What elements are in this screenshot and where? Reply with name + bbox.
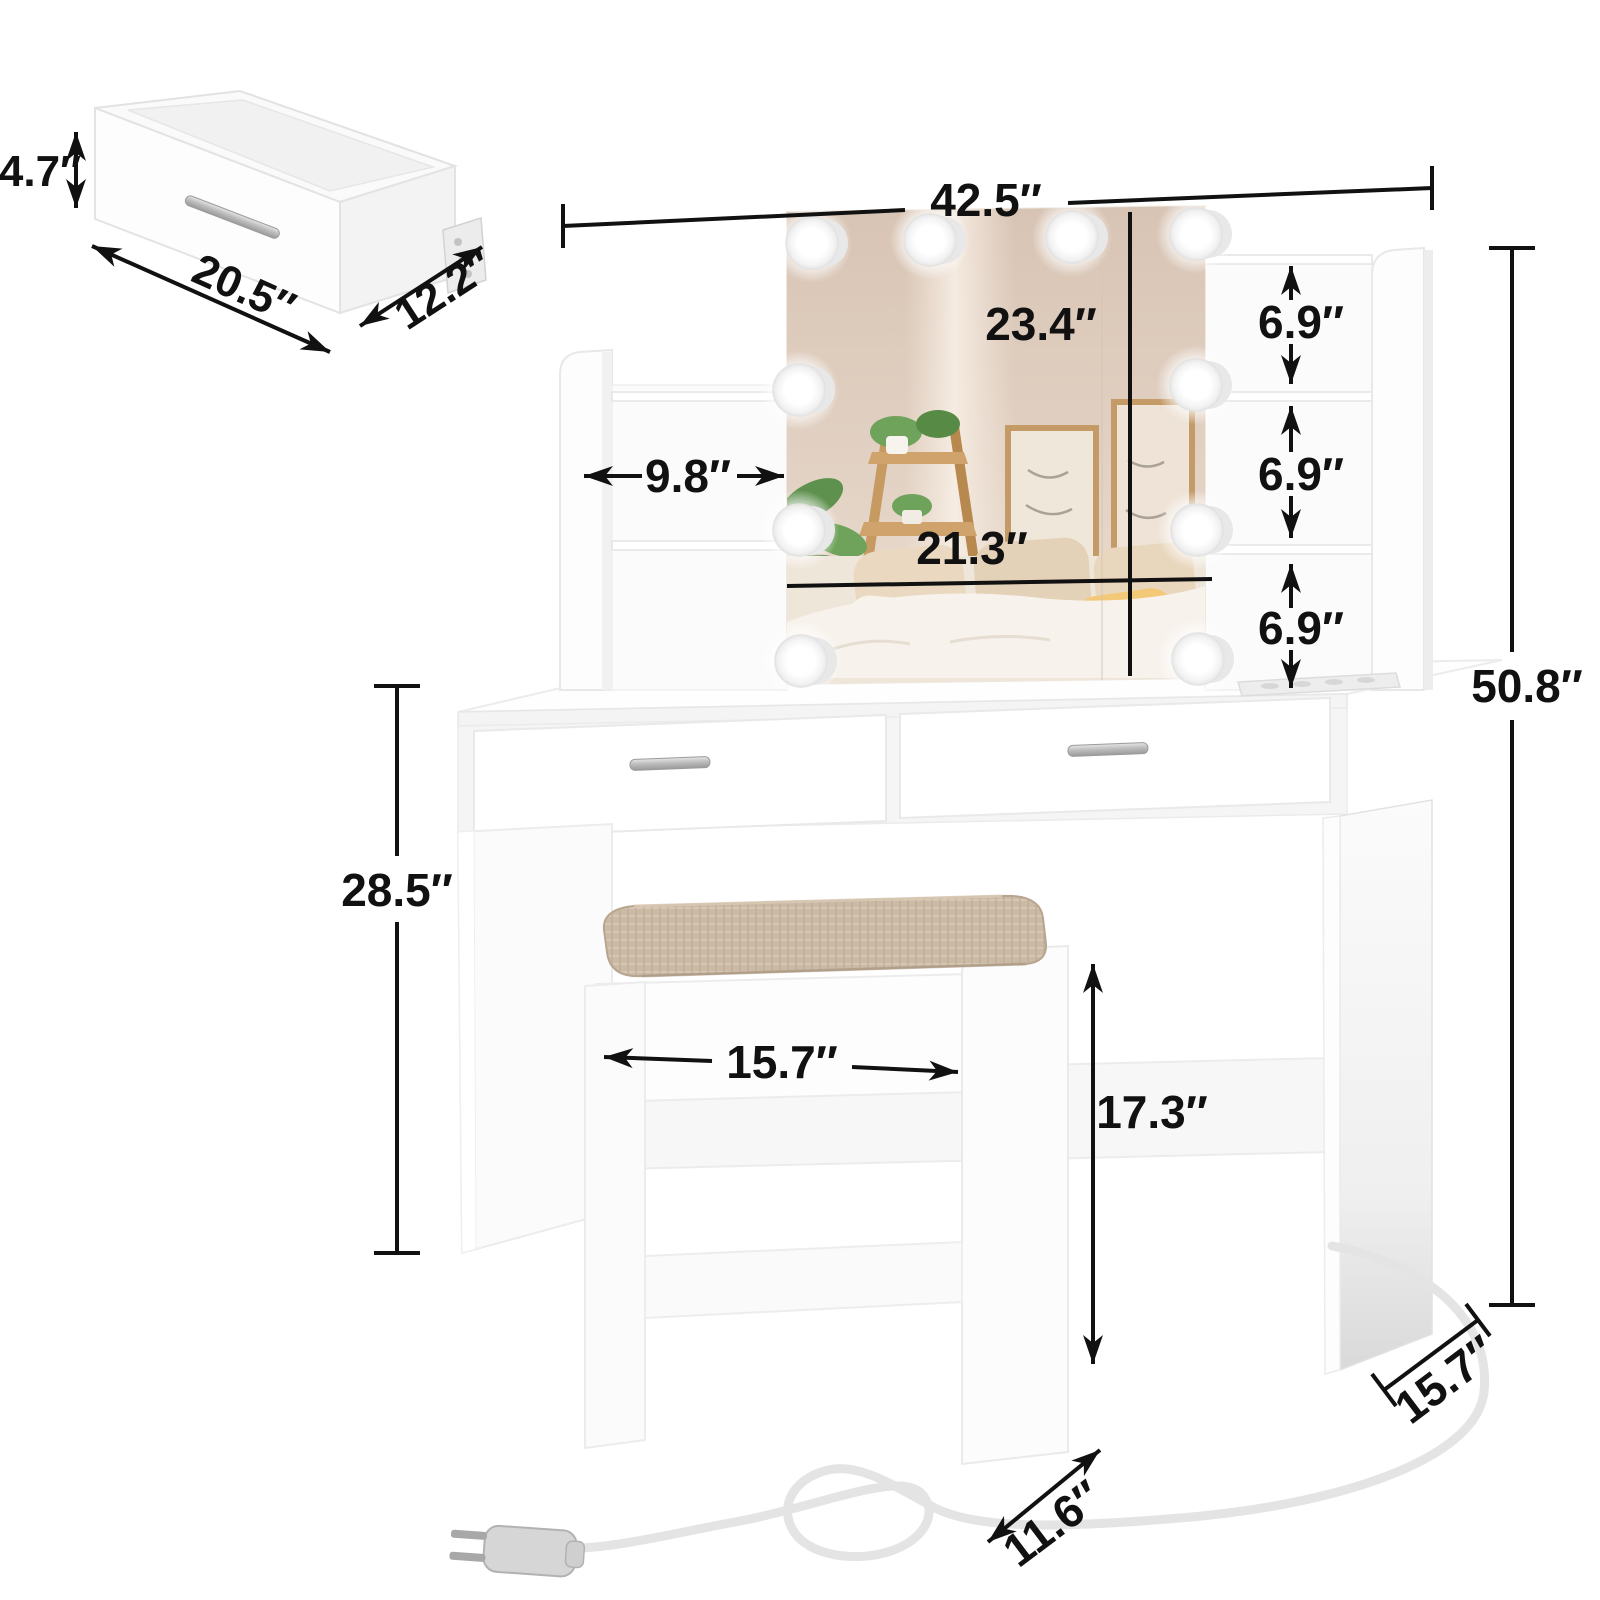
- light-bulb-icon: [761, 621, 841, 701]
- power-plug-icon: [449, 1523, 586, 1578]
- drawer-diagram: 4.7″ 20.5″ 12.2″: [0, 91, 502, 352]
- dim-drawer-height: 4.7″: [0, 132, 81, 208]
- hutch-right-panel: [1372, 248, 1424, 690]
- dim-left-shelf-width-label: 9.8″: [645, 450, 731, 502]
- light-bulb-icon: [1156, 194, 1236, 274]
- dim-overall-height-label: 50.8″: [1471, 660, 1583, 712]
- stool-right-panel: [962, 946, 1068, 1464]
- light-bulb-icon: [1032, 197, 1112, 277]
- stool-left-panel: [585, 982, 645, 1448]
- dim-cubby-bottom-label: 6.9″: [1258, 602, 1344, 654]
- hutch-right-shelf-top-board: [1205, 255, 1372, 264]
- dim-stool-depth: 11.6″: [988, 1450, 1112, 1577]
- drawer-handle-icon: [630, 756, 710, 770]
- dim-overall-width-label: 42.5″: [930, 174, 1042, 226]
- hutch-left-panel-edge: [602, 352, 612, 690]
- drawer-handle-icon: [1068, 742, 1148, 756]
- product-dimension-diagram: 4.7″ 20.5″ 12.2″: [0, 0, 1600, 1600]
- stool-stretcher: [645, 1242, 962, 1318]
- dim-stool-width-label: 15.7″: [726, 1036, 838, 1088]
- dim-stool-height: 17.3″: [1093, 964, 1208, 1364]
- dim-desk-height-label: 28.5″: [341, 864, 453, 916]
- dim-desk-height: 28.5″: [341, 686, 453, 1253]
- dim-mirror-width-label: 21.3″: [916, 522, 1028, 574]
- dim-overall-height: 50.8″: [1471, 248, 1583, 1305]
- desk-drawer-left: [474, 715, 886, 837]
- dim-stool-depth-label: 11.6″: [993, 1470, 1111, 1577]
- diagram-canvas: 4.7″ 20.5″ 12.2″: [0, 0, 1600, 1600]
- dim-mirror-height-label: 23.4″: [985, 298, 1097, 350]
- dim-drawer-height-label: 4.7″: [0, 147, 81, 196]
- dim-cubby-top-label: 6.9″: [1258, 296, 1344, 348]
- hutch-right-panel-edge: [1424, 250, 1433, 690]
- desk-right-leg-inner-face: [1340, 800, 1432, 1370]
- desk-drawer-right: [900, 698, 1330, 818]
- dim-stool-height-label: 17.3″: [1096, 1086, 1208, 1138]
- hutch-left-shelf-mid: [612, 541, 787, 550]
- light-bulb-icon: [759, 350, 839, 430]
- stool: [585, 896, 1068, 1464]
- dim-cubby-middle-label: 6.9″: [1258, 448, 1344, 500]
- light-bulb-icon: [759, 490, 839, 570]
- light-bulb-icon: [1157, 490, 1237, 570]
- light-bulb-icon: [1158, 619, 1238, 699]
- light-bulb-icon: [1156, 345, 1236, 425]
- stool-cushion: [604, 896, 1046, 976]
- desk-right-leg-front-edge: [1323, 816, 1340, 1374]
